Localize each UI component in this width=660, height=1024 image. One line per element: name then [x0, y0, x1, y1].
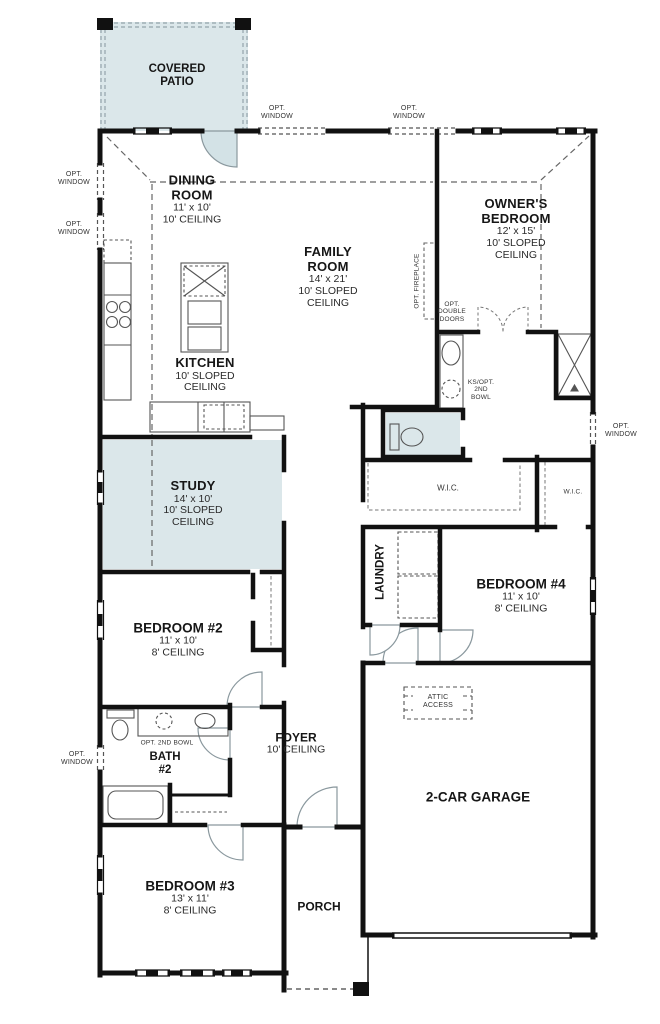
room-ceiling: 10' SLOPED CEILING [153, 505, 233, 529]
annotation-text: OPT. DOUBLE DOORS [438, 301, 466, 323]
annotation-text: OPT. WINDOW [261, 105, 293, 120]
room-name: FAMILY ROOM [288, 245, 368, 274]
room-name: LAUNDRY [375, 537, 388, 607]
room-name: BEDROOM #3 [130, 879, 250, 894]
room-name: BEDROOM #4 [461, 577, 581, 592]
room-name: FOYER [246, 731, 346, 744]
label-bedroom-2: BEDROOM #2 11' x 10' 8' CEILING [118, 621, 238, 660]
label-wic-1: W.I.C. [423, 485, 473, 494]
shower-fixture [558, 334, 591, 396]
annotation-text: OPT. WINDOW [605, 423, 637, 438]
annotation-text: OPT. FIREPLACE [413, 253, 420, 308]
label-opt-window-top-2: OPT. WINDOW [389, 105, 429, 121]
label-opt-window-right: OPT. WINDOW [601, 423, 641, 439]
annotation-text: OPT. 2ND BOWL [141, 739, 194, 746]
front-door-arc [297, 787, 337, 827]
sink-fixture [195, 714, 215, 729]
room-name: KITCHEN [165, 356, 245, 371]
kitchen-island [181, 263, 228, 352]
room-ceiling: 10' SLOPED CEILING [288, 286, 368, 310]
bath2-door-arc [198, 728, 230, 760]
label-foyer: FOYER 10' CEILING [246, 731, 346, 756]
nook-counter [150, 402, 284, 432]
room-ceiling: 10' CEILING [158, 215, 226, 227]
label-kitchen: KITCHEN 10' SLOPED CEILING [165, 356, 245, 394]
room-name: BEDROOM #2 [118, 621, 238, 636]
label-porch: PORCH [284, 900, 354, 913]
patio-door-arc [201, 131, 237, 167]
label-opt-2nd-bowl: OPT. 2ND BOWL [132, 739, 202, 746]
garage-door [392, 933, 572, 938]
room-name: STUDY [153, 479, 233, 494]
bathtub-fixture [103, 786, 168, 824]
label-bedroom-3: BEDROOM #3 13' x 11' 8' CEILING [130, 879, 250, 918]
washer-dryer [398, 532, 438, 618]
room-ceiling: 8' CEILING [130, 906, 250, 918]
closet-shelving [271, 462, 545, 648]
label-ks-opt-2nd-bowl: KS/OPT. 2ND BOWL [464, 379, 498, 401]
label-opt-double-doors: OPT. DOUBLE DOORS [435, 301, 469, 323]
label-bedroom-4: BEDROOM #4 11' x 10' 8' CEILING [461, 577, 581, 616]
label-opt-window-left-2: OPT. WINDOW [54, 221, 94, 237]
patio-post [235, 18, 251, 30]
annotation-text: KS/OPT. 2ND BOWL [468, 379, 494, 401]
room-name: 2-CAR GARAGE [393, 789, 563, 804]
opt-double-doors-arcs [478, 307, 528, 332]
annotation-text: OPT. WINDOW [58, 221, 90, 236]
annotation-text: OPT. WINDOW [61, 751, 93, 766]
room-ceiling: 10' CEILING [246, 745, 346, 757]
room-name: OWNER'S BEDROOM [472, 197, 560, 226]
label-attic-access: ATTIC ACCESS [415, 694, 461, 710]
porch-structure [287, 935, 369, 996]
annotation-text: ATTIC ACCESS [423, 694, 453, 709]
label-dining-room: DINING ROOM 11' x 10' 10' CEILING [158, 174, 226, 227]
room-name: W.I.C. [437, 484, 459, 493]
optional-second-bowl [156, 713, 172, 729]
kitchen-fixtures [104, 240, 284, 432]
annotation-text: OPT. WINDOW [393, 105, 425, 120]
optional-second-bowl [442, 380, 460, 398]
patio-post [97, 18, 113, 30]
room-name: DINING ROOM [158, 174, 226, 203]
label-opt-window-bath: OPT. WINDOW [57, 751, 97, 767]
label-wic-2: W.I.C. [553, 488, 593, 495]
sink-fixture [442, 341, 460, 365]
room-name: COVERED PATIO [141, 63, 213, 89]
label-study: STUDY 14' x 10' 10' SLOPED CEILING [153, 479, 233, 529]
label-opt-fireplace: OPT. FIREPLACE [413, 253, 420, 308]
room-name: W.I.C. [564, 488, 583, 495]
cooktop-fixture [107, 302, 131, 328]
label-opt-window-top-1: OPT. WINDOW [257, 105, 297, 121]
room-ceiling: 10' SLOPED CEILING [472, 238, 560, 262]
room-ceiling: 10' SLOPED CEILING [165, 371, 245, 395]
bedroom3-door-arc [208, 825, 243, 860]
room-name: PORCH [284, 900, 354, 913]
porch-post [353, 982, 369, 996]
toilet-fixture [107, 710, 134, 740]
label-family-room: FAMILY ROOM 14' x 21' 10' SLOPED CEILING [288, 245, 368, 309]
label-laundry: LAUNDRY [375, 537, 388, 607]
room-ceiling: 8' CEILING [461, 604, 581, 616]
label-garage: 2-CAR GARAGE [393, 789, 563, 804]
bedroom2-door-arc [227, 672, 262, 707]
floor-plan: COVERED PATIO DINING ROOM 11' x 10' 10' … [0, 0, 660, 1024]
room-name: BATH #2 [144, 751, 186, 777]
label-owners-bedroom: OWNER'S BEDROOM 12' x 15' 10' SLOPED CEI… [472, 197, 560, 261]
room-ceiling: 8' CEILING [118, 648, 238, 660]
floor-plan-svg [0, 0, 660, 1024]
label-bath-2: BATH #2 [144, 751, 186, 777]
label-opt-window-left-1: OPT. WINDOW [54, 171, 94, 187]
annotation-text: OPT. WINDOW [58, 171, 90, 186]
label-covered-patio: COVERED PATIO [141, 63, 213, 89]
bedroom4-door-arc [440, 630, 473, 663]
